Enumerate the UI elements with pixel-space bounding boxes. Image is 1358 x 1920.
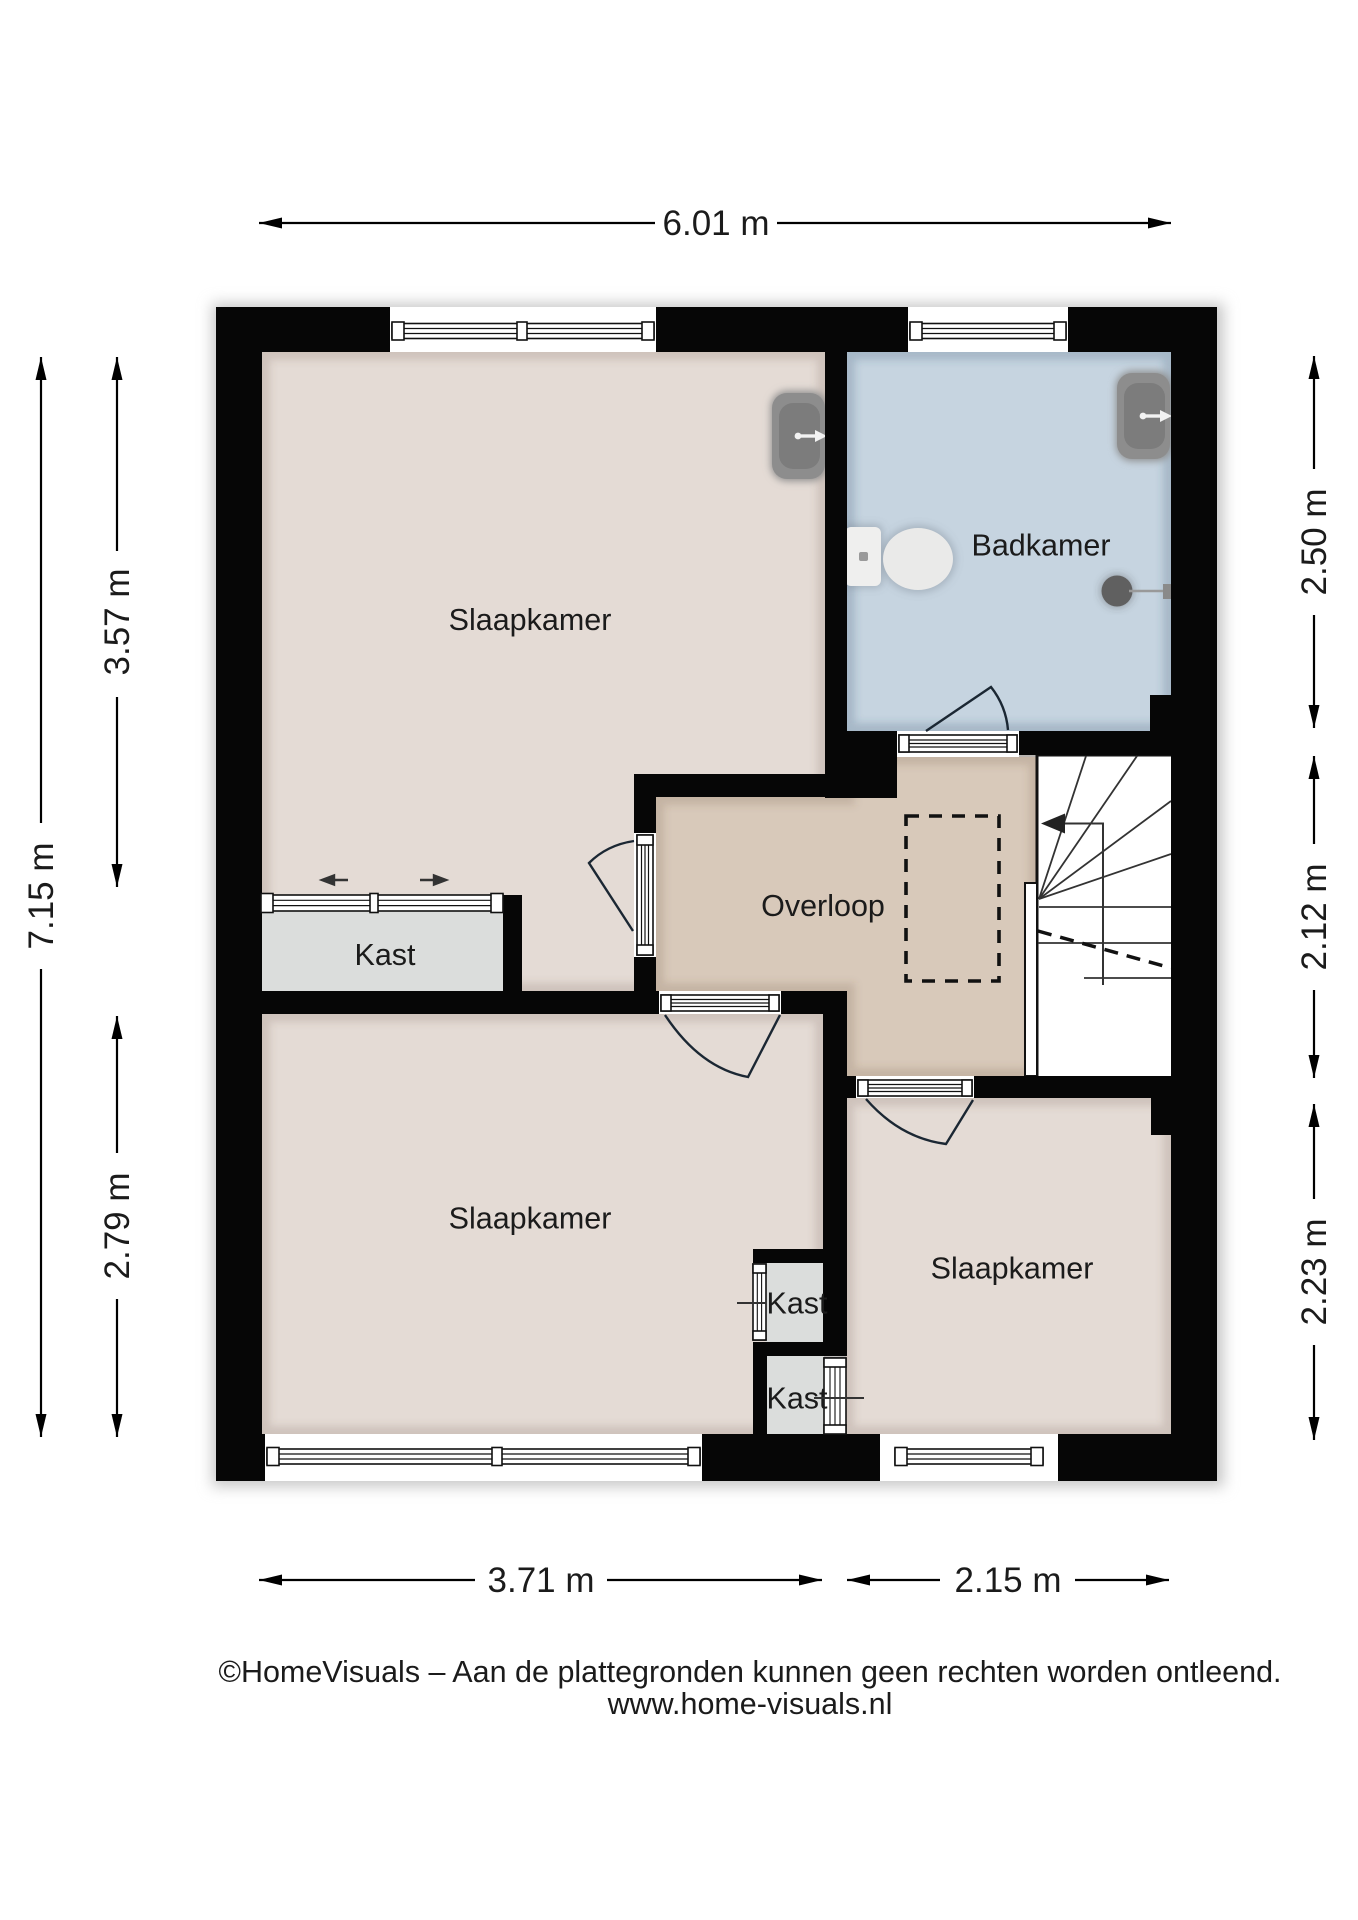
svg-text:2.79 m: 2.79 m (98, 1173, 137, 1280)
svg-text:3.71 m: 3.71 m (488, 1561, 595, 1600)
svg-text:2.12 m: 2.12 m (1295, 864, 1334, 971)
svg-text:Kast: Kast (354, 938, 416, 972)
svg-text:Slaapkamer: Slaapkamer (931, 1252, 1094, 1286)
svg-text:Kast: Kast (766, 1287, 828, 1321)
svg-text:Badkamer: Badkamer (971, 529, 1110, 563)
svg-text:7.15 m: 7.15 m (22, 843, 61, 950)
svg-text:Slaapkamer: Slaapkamer (449, 603, 612, 637)
svg-text:Overloop: Overloop (761, 889, 885, 923)
svg-text:www.home-visuals.nl: www.home-visuals.nl (607, 1687, 893, 1721)
svg-text:3.57 m: 3.57 m (98, 569, 137, 676)
svg-text:6.01 m: 6.01 m (663, 204, 770, 243)
svg-text:Slaapkamer: Slaapkamer (449, 1202, 612, 1236)
svg-text:2.50 m: 2.50 m (1295, 489, 1334, 596)
svg-text:2.15 m: 2.15 m (955, 1561, 1062, 1600)
svg-text:©HomeVisuals – Aan de plattegr: ©HomeVisuals – Aan de plattegronden kunn… (218, 1655, 1281, 1689)
svg-text:2.23 m: 2.23 m (1295, 1219, 1334, 1326)
